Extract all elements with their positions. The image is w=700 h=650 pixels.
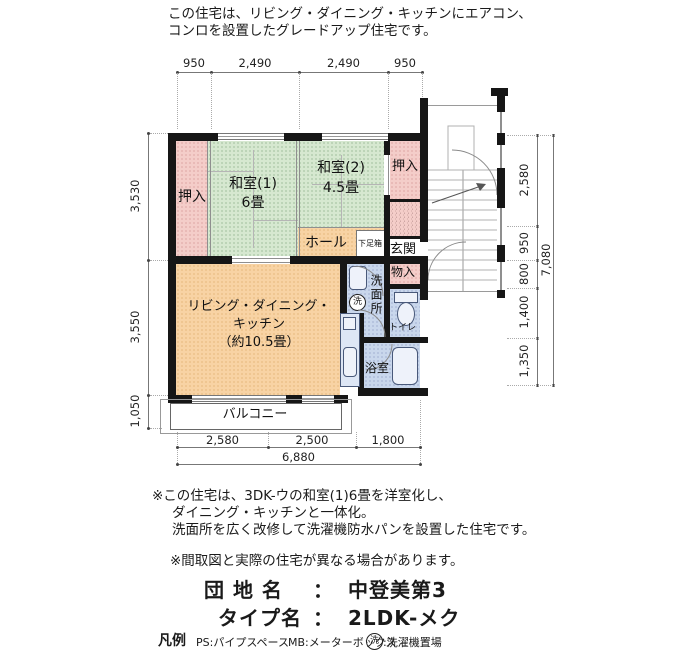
extension-line	[150, 428, 162, 429]
room-label-ldk-1: リビング・ダイニング・	[180, 300, 338, 315]
wall-segment	[340, 260, 347, 313]
dim-top-2: 2,490	[211, 56, 299, 70]
kitchen-sink-icon	[343, 347, 357, 377]
type-name-value: 2LDK-メク	[348, 602, 460, 631]
extension-line	[420, 400, 421, 465]
tatami-line	[208, 171, 253, 172]
legend-title: 凡例	[158, 630, 186, 650]
legend-laundry-key: 洗	[370, 637, 379, 646]
room-label-washitsu1: 和室(1)	[208, 176, 298, 192]
dimension-tick	[355, 446, 358, 449]
wall-segment	[497, 88, 505, 112]
room-label-bath: 浴室	[365, 362, 389, 376]
extension-line	[211, 73, 212, 129]
dim-right-5: 1,350	[517, 345, 531, 378]
dimension-line	[148, 133, 149, 428]
wall-segment	[388, 284, 420, 289]
header-line-2: コンロを設置したグレードアップ住宅です。	[168, 23, 437, 40]
dim-bottom-1: 2,580	[177, 433, 268, 447]
window	[500, 262, 502, 290]
dimension-tick	[419, 463, 422, 466]
estate-name-label: 団 地 名	[204, 574, 283, 603]
extension-line	[507, 260, 539, 261]
fusuma-line	[299, 141, 300, 256]
dim-right-3: 800	[517, 263, 531, 285]
wall-segment	[420, 260, 428, 300]
dimension-tick	[176, 463, 179, 466]
note-disclaimer: ※間取図と実際の住宅が異なる場合があります。	[170, 549, 463, 569]
dim-left-3: 1,050	[128, 395, 142, 428]
floorplan-sheet: この住宅は、リビング・ダイニング・キッチンにエアコン、 コンロを設置したグレード…	[0, 0, 700, 650]
extension-line	[507, 385, 555, 386]
extension-line	[150, 395, 168, 396]
bathtub-icon	[392, 347, 418, 385]
dim-bottom-total: 6,880	[177, 450, 420, 464]
note-remodel-3: 洗面所を広く改修して洗濯機防水パンを設置した住宅です。	[172, 518, 535, 538]
washing-machine-label: 洗	[353, 298, 362, 307]
room-label-oshiire-right: 押入	[388, 160, 422, 175]
window	[500, 145, 502, 168]
dim-top-1: 950	[177, 56, 211, 70]
dimension-tick	[419, 446, 422, 449]
dim-right-4: 1,400	[517, 296, 531, 329]
room-label-monoire: 物入	[391, 266, 415, 280]
tatami-line	[253, 220, 298, 221]
header-line-1: この住宅は、リビング・ダイニング・キッチンにエアコン、	[168, 6, 532, 23]
room-size-ldk: （約10.5畳）	[180, 336, 338, 351]
wall-segment	[384, 141, 390, 155]
room-label-oshiire-left: 押入	[176, 189, 208, 205]
wall-segment	[497, 168, 505, 208]
wall-segment	[497, 290, 505, 298]
wall-segment	[284, 133, 322, 141]
window	[322, 133, 388, 140]
dim-right-1: 2,580	[517, 164, 531, 197]
dim-top-3: 2,490	[299, 56, 388, 70]
stairwell	[428, 105, 498, 293]
estate-name-value: 中登美第3	[348, 574, 447, 603]
dimension-line	[177, 447, 420, 448]
extension-line	[150, 133, 168, 134]
wall-segment	[497, 245, 505, 262]
wall-segment	[386, 199, 420, 202]
window	[500, 112, 502, 133]
dim-right-2: 950	[517, 232, 531, 254]
dimension-tick	[176, 446, 179, 449]
legend-ps: PS:パイプスペース	[196, 634, 289, 650]
dim-bottom-3: 1,800	[356, 433, 420, 447]
shoebox-label: 下足箱	[358, 239, 382, 248]
extension-line	[507, 338, 539, 339]
dimension-line	[177, 464, 420, 465]
extension-line	[507, 288, 539, 289]
room-label-washitsu2: 和室(2)	[298, 160, 384, 176]
extension-line	[177, 73, 178, 129]
extension-line	[507, 226, 539, 227]
wall-segment	[358, 388, 428, 396]
stove-icon	[343, 317, 356, 330]
room-label-genkan: 玄関	[390, 243, 416, 258]
dimension-tick	[267, 446, 270, 449]
dim-right-total: 7,080	[539, 244, 553, 277]
wall-segment	[168, 256, 232, 264]
room-label-balcony: バルコニー	[170, 408, 340, 423]
wall-segment	[168, 133, 176, 403]
extension-line	[507, 135, 555, 136]
separator-colon: ：	[313, 574, 334, 603]
wall-segment	[497, 133, 505, 145]
window	[500, 208, 502, 245]
fusuma-line	[298, 227, 384, 228]
separator-colon: ：	[313, 602, 334, 631]
window	[218, 133, 284, 140]
pipe-space-box	[390, 202, 420, 236]
dim-bottom-2: 2,500	[268, 433, 356, 447]
room-label-senmenjo: 洗面所	[368, 274, 385, 316]
dim-left-2: 3,550	[128, 311, 142, 344]
sliding-door-line	[232, 262, 290, 263]
extension-line	[150, 260, 168, 261]
wall-segment	[386, 236, 420, 239]
room-size-washitsu1: 6畳	[208, 195, 298, 211]
legend-laundry-icon: 洗	[366, 633, 383, 650]
legend-laundry-value: :洗濯機置場	[383, 634, 442, 650]
extension-line	[299, 73, 300, 129]
dim-left-1: 3,530	[128, 180, 142, 213]
extension-line	[388, 73, 389, 129]
room-label-toilet: トイレ	[389, 323, 416, 333]
room-label-hall: ホール	[305, 235, 347, 251]
dim-top-4: 950	[388, 56, 422, 70]
room-label-ldk-2: キッチン	[180, 318, 338, 333]
room-size-washitsu2: 4.5畳	[298, 180, 384, 196]
dimension-line	[553, 135, 554, 385]
sliding-door-line	[232, 258, 290, 259]
type-name-label: タイプ名	[218, 602, 302, 631]
